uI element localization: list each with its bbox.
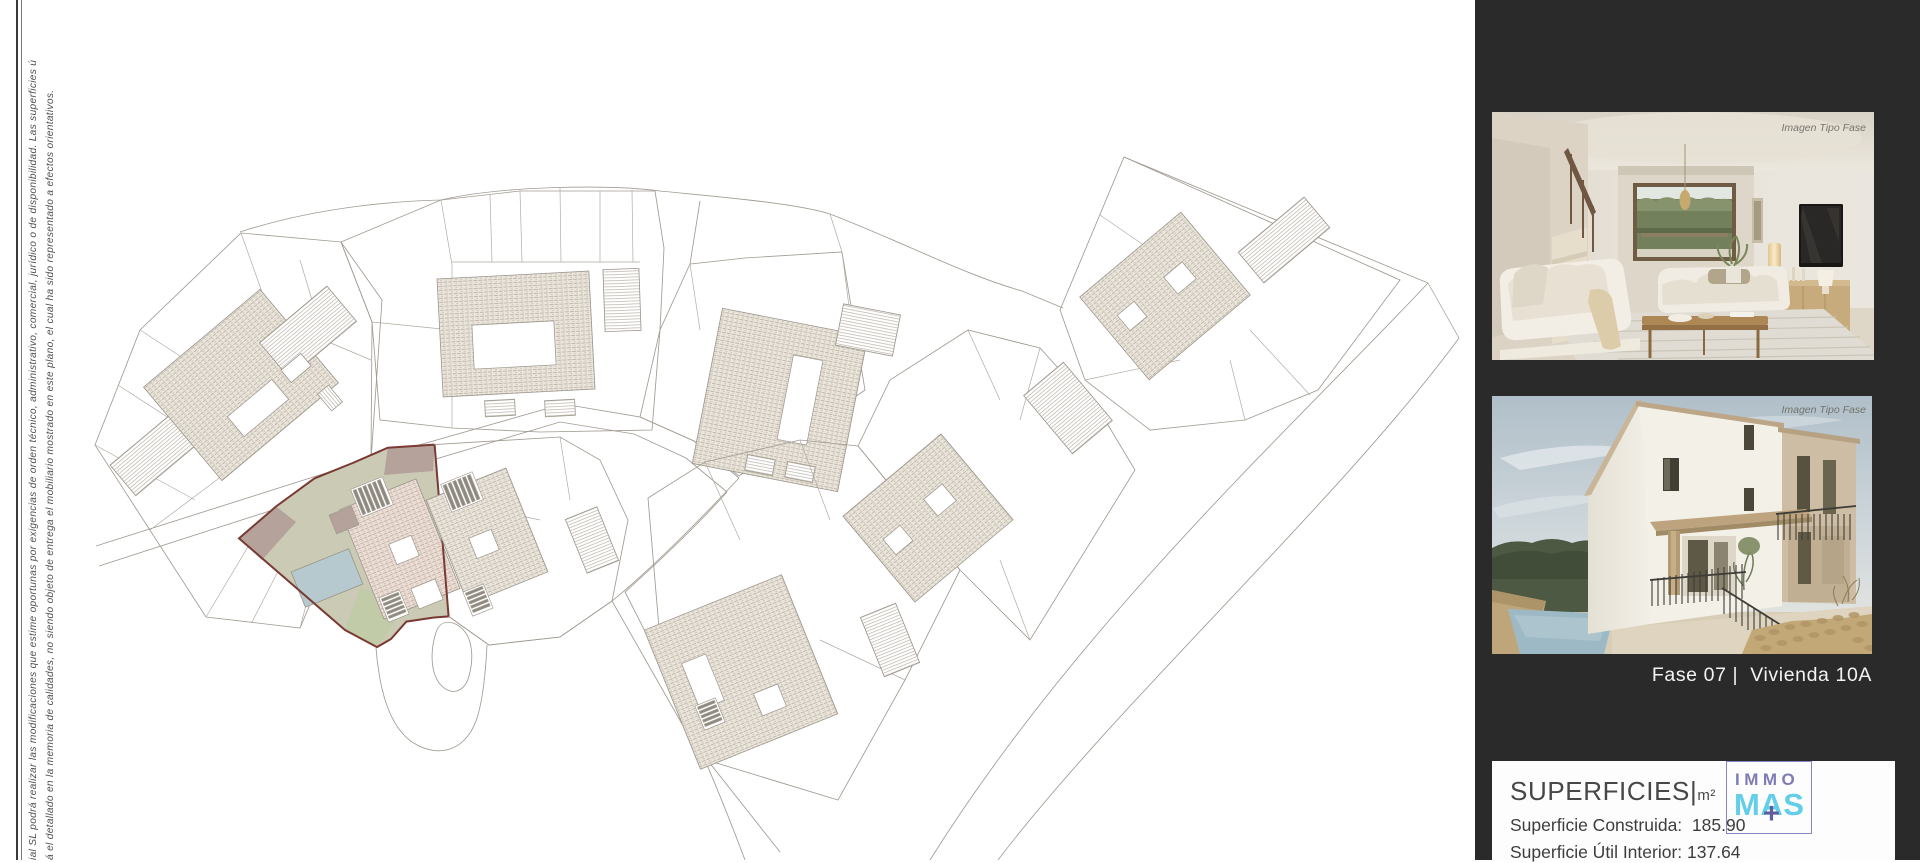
svg-text:Imagen Tipo Fase: Imagen Tipo Fase [1781,404,1866,416]
svg-text:Imagen Tipo Fase: Imagen Tipo Fase [1781,122,1866,134]
